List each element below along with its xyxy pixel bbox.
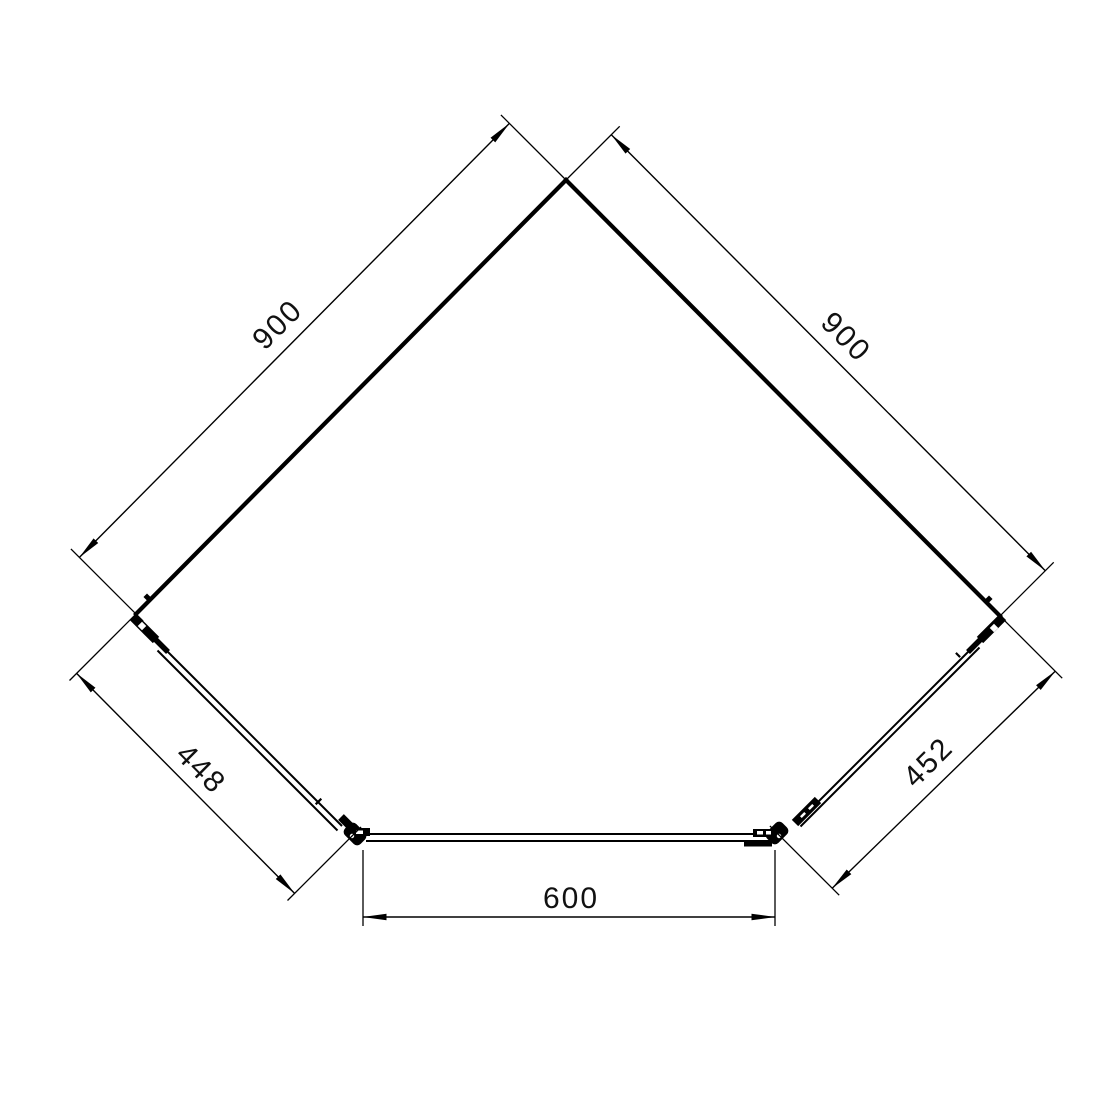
left-glass-panel xyxy=(158,646,343,831)
dimension-left-panel: 448 xyxy=(70,607,362,901)
right-glass-joint-tick xyxy=(956,653,960,657)
dim-label-left-wall: 900 xyxy=(246,293,309,356)
dimension-door: 600 xyxy=(363,850,775,926)
left-wall-line xyxy=(136,180,566,614)
right-bottom-bracket xyxy=(744,840,772,847)
right-wall-line xyxy=(566,180,1000,616)
pentagon-shower-enclosure-plan: 900 900 448 452 600 xyxy=(0,0,1100,1100)
enclosure-outline xyxy=(133,180,1003,847)
dim-label-right-panel: 452 xyxy=(897,731,960,794)
dimension-right-panel: 452 xyxy=(770,609,1062,895)
technical-drawing-page: 900 900 448 452 600 xyxy=(0,0,1100,1100)
dim-label-left-panel: 448 xyxy=(169,738,232,801)
dim-label-right-wall: 900 xyxy=(814,306,877,369)
right-glass-panel xyxy=(795,644,980,827)
dimension-left-wall: 900 xyxy=(71,115,575,621)
door-bottom-glass xyxy=(366,834,762,841)
dim-label-door: 600 xyxy=(543,882,599,915)
dimension-right-wall: 900 xyxy=(558,126,1054,623)
